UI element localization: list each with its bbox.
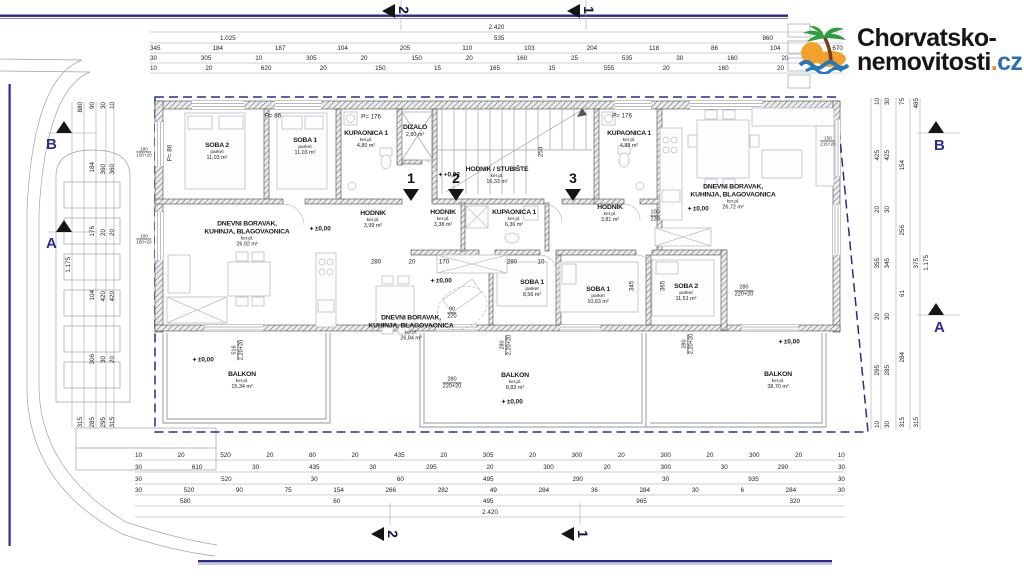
dim-row-bottom-1: 1020520208020435203052030020300203002010 [135, 452, 845, 459]
section-arrow-down-icon [403, 189, 419, 201]
stacked-dim: 2802,20+20 [681, 334, 694, 354]
dim-value: 295 [874, 365, 881, 376]
dim-row-bottom-3: 3052030604952903093530 [135, 476, 845, 483]
section-arrow-left-icon [371, 527, 384, 541]
elevation-label: ✦±0,00 [501, 398, 523, 405]
interior-dim: 280 [371, 258, 381, 265]
dim-value: 30 [311, 476, 318, 483]
floor-plan-sheet: 2.420 1.025535860 3451841871042051101032… [0, 0, 1024, 581]
dim-value: 150 [375, 65, 386, 72]
dim-value: 176 [89, 226, 96, 237]
dim-value: 300 [543, 464, 554, 471]
dim-value: 284 [640, 487, 651, 494]
dim-value: 60 [397, 476, 404, 483]
dim-value: 15 [548, 65, 555, 72]
interior-dim: 365 [659, 281, 666, 291]
dim-col-right-2: 30425303453028530 [882, 98, 892, 428]
dim-value: 30 [662, 476, 669, 483]
dim-value: 520 [221, 476, 232, 483]
level-marker-icon: ✦ [430, 278, 435, 284]
dim-value: 103 [524, 45, 535, 52]
level-marker-icon: ✦ [192, 357, 197, 363]
section-marker-bottom-1: 1 [575, 530, 591, 538]
elevation-label: ✦±0,00 [778, 338, 800, 345]
dim-value: 285 [884, 365, 891, 376]
dim-value: 20 [782, 55, 789, 62]
dim-row-top-5: 10206202015015165155552016020620 [150, 65, 843, 72]
dim-value: 425 [874, 150, 881, 161]
dim-value: 10 [150, 65, 157, 72]
dim-value: 154 [899, 160, 906, 171]
room-label-hodnik-left: HODNIKker.pl.3,99 m² [360, 210, 386, 230]
dim-value: 15 [434, 65, 441, 72]
dim-value: 300 [660, 464, 671, 471]
parapet-label: P= 86 [166, 145, 173, 161]
dim-value: 880 [77, 102, 84, 113]
parapet-label: P= 86 [265, 112, 281, 119]
dim-value: 20 [100, 229, 107, 236]
dim-col-right-4: 485375315 [911, 98, 921, 428]
level-marker-icon: ✦ [438, 172, 443, 178]
dim-value: 20 [874, 206, 881, 213]
dim-value: 30 [100, 102, 107, 109]
dim-value: 285 [89, 417, 96, 428]
dim-value: 30 [838, 476, 845, 483]
section-arrow-down-icon [448, 189, 464, 201]
dim-value: 20 [604, 464, 611, 471]
dim-value: 425 [884, 150, 891, 161]
dim-value: 20 [109, 229, 116, 236]
section-arrow-up-icon [928, 121, 944, 133]
level-marker-icon: ✦ [778, 339, 783, 345]
dim-value: 30 [135, 464, 142, 471]
dim-value: 205 [400, 45, 411, 52]
dim-value: 20 [618, 452, 625, 459]
section-arrow-left-icon [567, 4, 580, 18]
room-label-kupaonica-mid: KUPAONICA 1ker.pl.6,36 m² [492, 209, 536, 229]
room-label-soba2-left: SOBA 2parket11,03 m² [205, 142, 229, 162]
dim-value: 1.175 [923, 255, 930, 271]
dim-value: 375 [913, 258, 920, 269]
dim-value: 10 [109, 102, 116, 109]
dim-col-left-3: 90184176104306285 [87, 102, 97, 428]
dim-row-top-2: 1.025535860 [150, 35, 843, 42]
elevation-label: ✦±0,00 [192, 356, 214, 363]
dim-value: 620 [261, 65, 272, 72]
room-label-kupaonica-left: KUPAONICA 1ker.pl.4,80 m² [344, 130, 388, 150]
dim-value: 20 [109, 356, 116, 363]
dim-value: 20 [320, 65, 327, 72]
dim-value: 345 [150, 45, 161, 52]
section-arrow-left-icon [561, 527, 574, 541]
dim-value: 305 [201, 55, 212, 62]
dim-value: 315 [899, 417, 906, 428]
dim-value: 118 [649, 45, 659, 52]
stacked-dim: 100220 [650, 209, 659, 222]
dim-value: 30 [884, 206, 891, 213]
dim-value: 2.420 [482, 509, 498, 516]
stacked-dim: 90220 [447, 306, 456, 319]
room-label-dizalo: DIZALO2,80 m² [403, 124, 427, 138]
dim-value: 355 [874, 258, 881, 269]
dim-col-right-5: 1.175 [921, 98, 931, 428]
dim-value: 420 [100, 291, 107, 302]
window-size-label: 180150+20 [136, 146, 151, 157]
room-label-kupaonica-right: KUPAONICA 1ker.pl.4,88 m² [607, 130, 651, 150]
section-arrow-up-icon [56, 121, 72, 133]
dim-value: 305 [306, 55, 317, 62]
dim-value: 10 [874, 98, 881, 105]
dim-value: 90 [236, 487, 243, 494]
logo: Chorvatsko- nemovitosti.cz [798, 26, 1022, 74]
dim-value: 75 [899, 98, 906, 105]
section-arrow-up-icon [928, 303, 944, 315]
dim-value: 6 [740, 487, 744, 494]
room-label-balkon-right: BALKONker.pl.38,70 m² [764, 371, 792, 391]
dim-row-bottom-6: 2.420 [135, 509, 845, 516]
dim-value: 300 [660, 452, 671, 459]
room-label-soba1-right: SOBA 1parket10,63 m² [586, 286, 610, 306]
dim-value: 30 [252, 464, 259, 471]
dim-value: 20 [486, 464, 493, 471]
parapet-label: P= 176 [612, 112, 632, 119]
room-label-balkon-mid: BALKONker.pl.8,83 m² [501, 372, 529, 392]
dim-value: 1.025 [220, 35, 236, 42]
room-label-soba1-mid: SOBA 1parket8,56 m² [520, 279, 544, 299]
room-label-dnevni-left: DNEVNI BORAVAK,KUHINJA, BLAGOVAONICAker.… [204, 220, 289, 247]
section-arrow-up-icon [56, 220, 72, 232]
dim-value: 90 [89, 102, 96, 109]
parapet-label: P= 176 [361, 113, 381, 120]
dim-value: 965 [636, 498, 647, 505]
dim-value: 184 [89, 162, 96, 173]
dim-value: 20 [266, 452, 273, 459]
section-marker-1-number: 1 [407, 170, 415, 186]
dim-col-right-1: 10425203552029510 [872, 98, 882, 428]
dim-value: 20 [706, 452, 713, 459]
elevation-label: ✦±0,00 [309, 225, 331, 232]
dim-value: 30 [884, 98, 891, 105]
dim-value: 10 [135, 452, 142, 459]
dim-value: 160 [517, 55, 528, 62]
dim-value: 520 [220, 452, 231, 459]
interior-dim: 10 [538, 258, 545, 265]
dim-value: 495 [483, 476, 494, 483]
dim-value: 30 [721, 464, 728, 471]
stacked-dim: 280220+20 [735, 284, 754, 297]
dim-value: 610 [192, 464, 203, 471]
dim-value: 20 [777, 65, 784, 72]
dim-value: 30 [838, 487, 845, 494]
dim-value: 30 [135, 476, 142, 483]
dim-value: 360 [109, 164, 116, 175]
stacked-dim: 280220+20 [443, 376, 462, 389]
dim-value: 160 [727, 55, 738, 62]
dim-value: 10 [838, 452, 845, 459]
balconies [163, 333, 826, 427]
dim-value: 300 [572, 452, 583, 459]
dim-value: 256 [899, 225, 906, 236]
dim-value: 435 [309, 464, 320, 471]
interior-dim: 345 [628, 281, 635, 291]
section-marker-2-number: 2 [452, 170, 460, 186]
dim-value: 290 [778, 464, 789, 471]
section-marker-3-number: 3 [569, 170, 577, 186]
dim-value: 320 [789, 498, 800, 505]
dim-value: 20 [440, 452, 447, 459]
dim-value: 20 [663, 65, 670, 72]
dim-value: 30 [369, 464, 376, 471]
dim-value: 315 [77, 417, 84, 428]
dim-value: 305 [483, 452, 494, 459]
dim-value: 30 [150, 55, 157, 62]
dim-col-left-2: 880315 [75, 102, 85, 428]
elevation-label: ✦±0,00 [430, 277, 452, 284]
interior-dim: 280 [507, 258, 517, 265]
dim-value: 60 [333, 498, 340, 505]
section-marker-bottom-2: 2 [385, 530, 401, 538]
palm-tree-icon [798, 26, 852, 74]
dim-value: 49 [490, 487, 497, 494]
dim-row-bottom-5: 58060495965320 [135, 498, 845, 505]
dim-value: 110 [462, 45, 472, 52]
dim-row-top-1: 2.420 [150, 24, 843, 31]
dim-value: 20 [352, 452, 359, 459]
dim-value: 266 [386, 487, 397, 494]
dim-value: 295 [100, 417, 107, 428]
dim-value: 104 [89, 290, 96, 301]
dim-value: 315 [109, 417, 116, 428]
dim-value: 30 [884, 313, 891, 320]
window-size-label: 100150+20 [136, 233, 151, 244]
interior-dim: 170 [439, 258, 449, 265]
dim-value: 535 [494, 35, 505, 42]
stacked-dim: 2802,20+20 [499, 335, 512, 355]
dim-value: 555 [604, 65, 615, 72]
window-size-label: 150215+20 [820, 135, 835, 146]
dim-value: 25 [571, 55, 578, 62]
dim-value: 184 [212, 45, 223, 52]
section-marker-right-B: B [934, 137, 945, 154]
dim-value: 30 [884, 421, 891, 428]
dim-value: 36 [591, 487, 598, 494]
dim-value: 150 [411, 55, 422, 62]
dim-value: 20 [361, 55, 368, 62]
room-label-soba1-left: SOBA 1parket11,03 m² [293, 137, 317, 157]
dim-value: 435 [394, 452, 405, 459]
dim-value: 10 [874, 421, 881, 428]
dim-value: 580 [180, 498, 191, 505]
section-marker-top-1: 1 [581, 6, 597, 14]
dim-value: 2.420 [489, 24, 505, 31]
dim-value: 30 [100, 356, 107, 363]
dim-value: 485 [913, 98, 920, 109]
dim-value: 104 [337, 45, 348, 52]
dim-value: 284 [899, 352, 906, 363]
dim-value: 495 [483, 498, 494, 505]
room-label-stubiste: HODNIK / STUBIŠTEker.pl.16,33 m² [466, 166, 529, 186]
dim-value: 420 [109, 291, 116, 302]
dim-value: 10 [255, 55, 262, 62]
dim-value: 284 [786, 487, 797, 494]
dim-value: 80 [309, 452, 316, 459]
room-label-hodnik-right: HODNIKker.pl.3,81 m² [597, 204, 623, 224]
dim-row-bottom-4: 305209075154266282492843628430628430 [135, 487, 845, 494]
dim-row-bottom-2: 30610304353029520300203003029030 [135, 464, 845, 471]
dim-value: 935 [748, 476, 759, 483]
section-marker-right-A: A [934, 319, 945, 336]
dim-value: 535 [622, 55, 633, 62]
dim-value: 20 [795, 452, 802, 459]
interior-dim: 250 [537, 147, 544, 157]
room-label-soba2-right: SOBA 2parket11,51 m² [674, 283, 698, 303]
dim-value: 20 [529, 452, 536, 459]
dim-value: 30 [692, 487, 699, 494]
dim-value: 300 [749, 452, 760, 459]
level-marker-icon: ✦ [501, 399, 506, 405]
dim-col-right-3: 7515425661284315 [897, 98, 907, 428]
level-marker-icon: ✦ [309, 226, 314, 232]
dim-col-left-1: 1.175 [63, 102, 73, 428]
dim-value: 20 [205, 65, 212, 72]
dim-col-left-5: 103602042020315 [107, 102, 117, 428]
dim-row-top-4: 30305103052015020160255353016020620 [150, 55, 843, 62]
logo-text: Chorvatsko- nemovitosti.cz [857, 26, 1022, 74]
dim-value: 86 [711, 45, 718, 52]
dim-value: 282 [438, 487, 449, 494]
dim-value: 20 [466, 55, 473, 62]
section-arrow-down-icon [565, 189, 581, 201]
room-label-hodnik-mid: HODNIKker.pl.3,38 m² [430, 209, 456, 229]
section-marker-left-A: A [46, 235, 57, 252]
dim-value: 160 [718, 65, 729, 72]
dim-value: 30 [676, 55, 683, 62]
section-marker-left-B: B [46, 136, 57, 153]
dim-value: 104 [770, 45, 781, 52]
dim-value: 315 [913, 417, 920, 428]
dim-value: 75 [285, 487, 292, 494]
dim-value: 30 [838, 464, 845, 471]
dim-value: 154 [333, 487, 344, 494]
dim-value: 30 [135, 487, 142, 494]
dim-value: 187 [275, 45, 286, 52]
dim-value: 290 [573, 476, 584, 483]
dim-value: 306 [89, 354, 96, 365]
dim-row-top-3: 34518418710420511010320411886104670 [150, 45, 843, 52]
section-marker-top-2: 2 [396, 6, 412, 14]
dim-value: 345 [884, 258, 891, 269]
dim-value: 295 [426, 464, 437, 471]
dim-value: 360 [100, 164, 107, 175]
interior-dim: 20 [409, 258, 416, 265]
dim-value: 520 [184, 487, 195, 494]
room-label-balkon-left: BALKONker.pl.15,34 m² [228, 371, 256, 391]
elevation-label: ✦±0,00 [687, 205, 709, 212]
section-arrow-left-icon [382, 4, 395, 18]
dim-value: 61 [899, 290, 906, 297]
dim-value: 860 [762, 35, 773, 42]
stacked-dim: 5162,20+20 [231, 340, 244, 360]
dim-value: 20 [874, 313, 881, 320]
dim-value: 204 [587, 45, 598, 52]
dim-value: 284 [539, 487, 550, 494]
room-label-dnevni-mid: DNEVNI BORAVAK,KUHINJA, BLAGOVAONICAker.… [368, 314, 453, 341]
level-marker-icon: ✦ [687, 206, 692, 212]
dim-value: 1.175 [65, 257, 72, 273]
dim-value: 165 [489, 65, 500, 72]
dim-value: 20 [178, 452, 185, 459]
